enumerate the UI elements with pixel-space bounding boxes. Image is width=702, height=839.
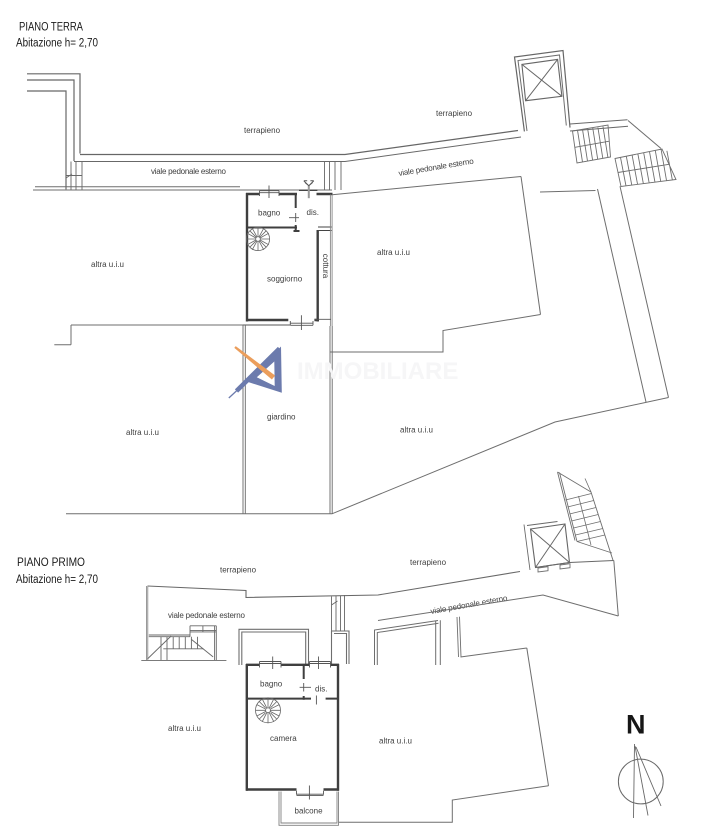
svg-text:viale pedonale esterno: viale pedonale esterno: [168, 611, 246, 620]
svg-text:Abitazione h= 2,70: Abitazione h= 2,70: [16, 38, 98, 50]
svg-text:IMMOBILIARE: IMMOBILIARE: [297, 358, 458, 385]
svg-text:PIANO PRIMO: PIANO PRIMO: [17, 557, 85, 569]
svg-text:dis.: dis.: [315, 685, 327, 694]
svg-text:bagno: bagno: [258, 209, 281, 218]
svg-text:cottura: cottura: [321, 254, 330, 279]
svg-text:terrapieno: terrapieno: [436, 109, 473, 118]
svg-text:altra u.i.u: altra u.i.u: [379, 737, 412, 746]
svg-text:terrapieno: terrapieno: [220, 566, 257, 575]
svg-text:altra u.i.u: altra u.i.u: [126, 428, 159, 437]
svg-text:soggiorno: soggiorno: [267, 275, 303, 284]
svg-text:N: N: [626, 710, 646, 740]
svg-text:giardino: giardino: [267, 413, 296, 422]
svg-text:viale pedonale esterno: viale pedonale esterno: [151, 167, 227, 176]
svg-text:terrapieno: terrapieno: [244, 126, 281, 135]
svg-text:PIANO TERRA: PIANO TERRA: [19, 22, 83, 34]
svg-text:dis.: dis.: [307, 208, 319, 217]
svg-text:balcone: balcone: [295, 807, 324, 816]
svg-text:altra u.i.u: altra u.i.u: [400, 426, 433, 435]
svg-text:altra u.i.u: altra u.i.u: [168, 724, 201, 733]
svg-text:camera: camera: [270, 734, 297, 743]
svg-text:altra u.i.u: altra u.i.u: [377, 248, 410, 257]
svg-text:viale pedonale esterno: viale pedonale esterno: [398, 156, 475, 178]
svg-text:bagno: bagno: [260, 680, 283, 689]
svg-text:terrapieno: terrapieno: [410, 558, 447, 567]
svg-text:Abitazione h= 2,70: Abitazione h= 2,70: [16, 574, 98, 586]
svg-text:altra u.i.u: altra u.i.u: [91, 260, 124, 269]
svg-text:viale pedonale esterno: viale pedonale esterno: [430, 593, 509, 616]
